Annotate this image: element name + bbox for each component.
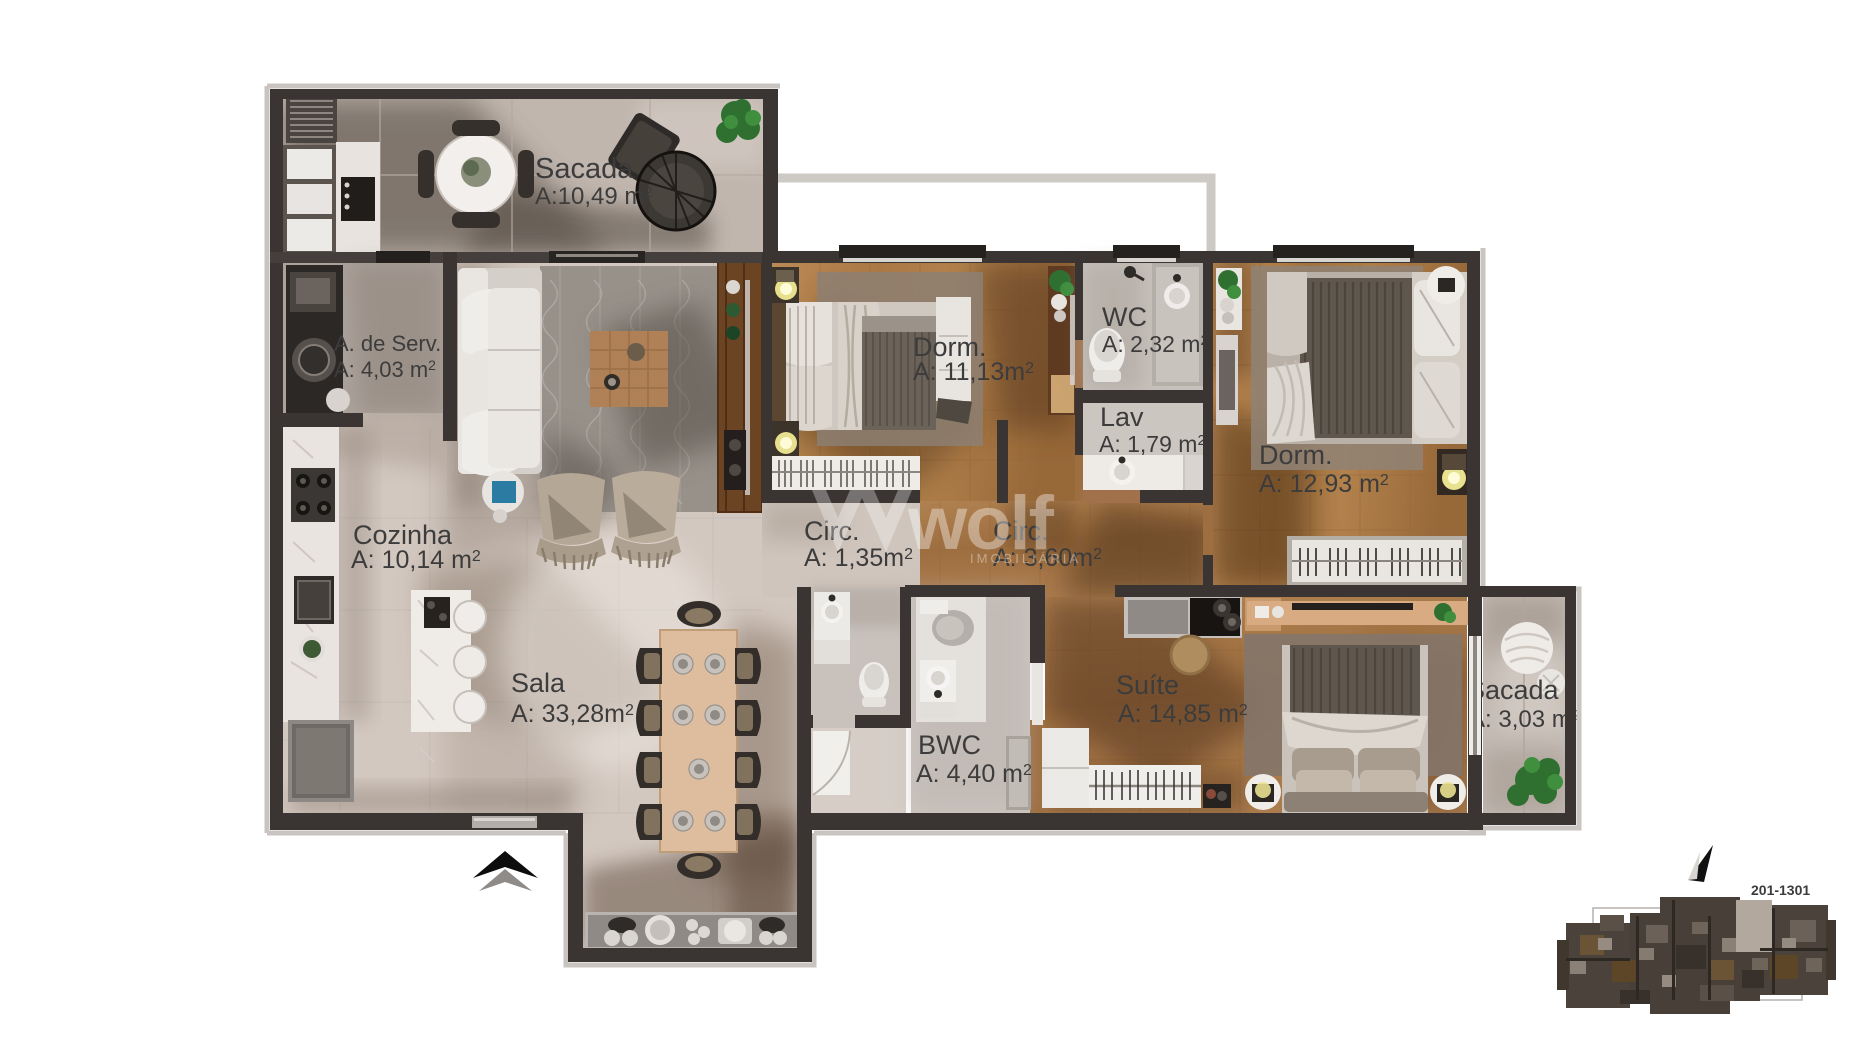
svg-text:A: 11,13m2: A: 11,13m2	[913, 358, 1034, 386]
svg-text:A: 1,35m2: A: 1,35m2	[804, 544, 913, 572]
svg-text:A: 14,85 m2: A: 14,85 m2	[1118, 700, 1248, 728]
svg-text:Lav: Lav	[1100, 402, 1144, 432]
svg-text:A: 12,93 m2: A: 12,93 m2	[1259, 470, 1389, 498]
svg-text:A: 3,03 m2: A: 3,03 m2	[1469, 706, 1580, 733]
svg-text:A: 33,28m2: A: 33,28m2	[511, 700, 634, 728]
svg-text:Suíte: Suíte	[1116, 670, 1179, 700]
svg-text:A: 10,14 m2: A: 10,14 m2	[351, 546, 481, 574]
svg-text:BWC: BWC	[918, 730, 981, 760]
svg-text:201-1301: 201-1301	[1751, 882, 1810, 898]
svg-text:Sala: Sala	[511, 668, 566, 698]
svg-text:A. de Serv.: A. de Serv.	[334, 331, 441, 356]
svg-text:A: 1,79 m2: A: 1,79 m2	[1099, 431, 1206, 457]
svg-text:IMOBILIÁRIA: IMOBILIÁRIA	[970, 551, 1081, 566]
svg-text:A: 4,03 m2: A: 4,03 m2	[334, 357, 436, 382]
svg-text:A: 4,40 m2: A: 4,40 m2	[916, 760, 1032, 788]
svg-text:A: 2,32 m2: A: 2,32 m2	[1102, 331, 1209, 357]
svg-text:A:10,49 m2: A:10,49 m2	[535, 183, 653, 210]
svg-text:Sacada: Sacada	[535, 153, 634, 185]
svg-text:Dorm.: Dorm.	[1259, 440, 1333, 470]
svg-text:WC: WC	[1102, 302, 1147, 332]
